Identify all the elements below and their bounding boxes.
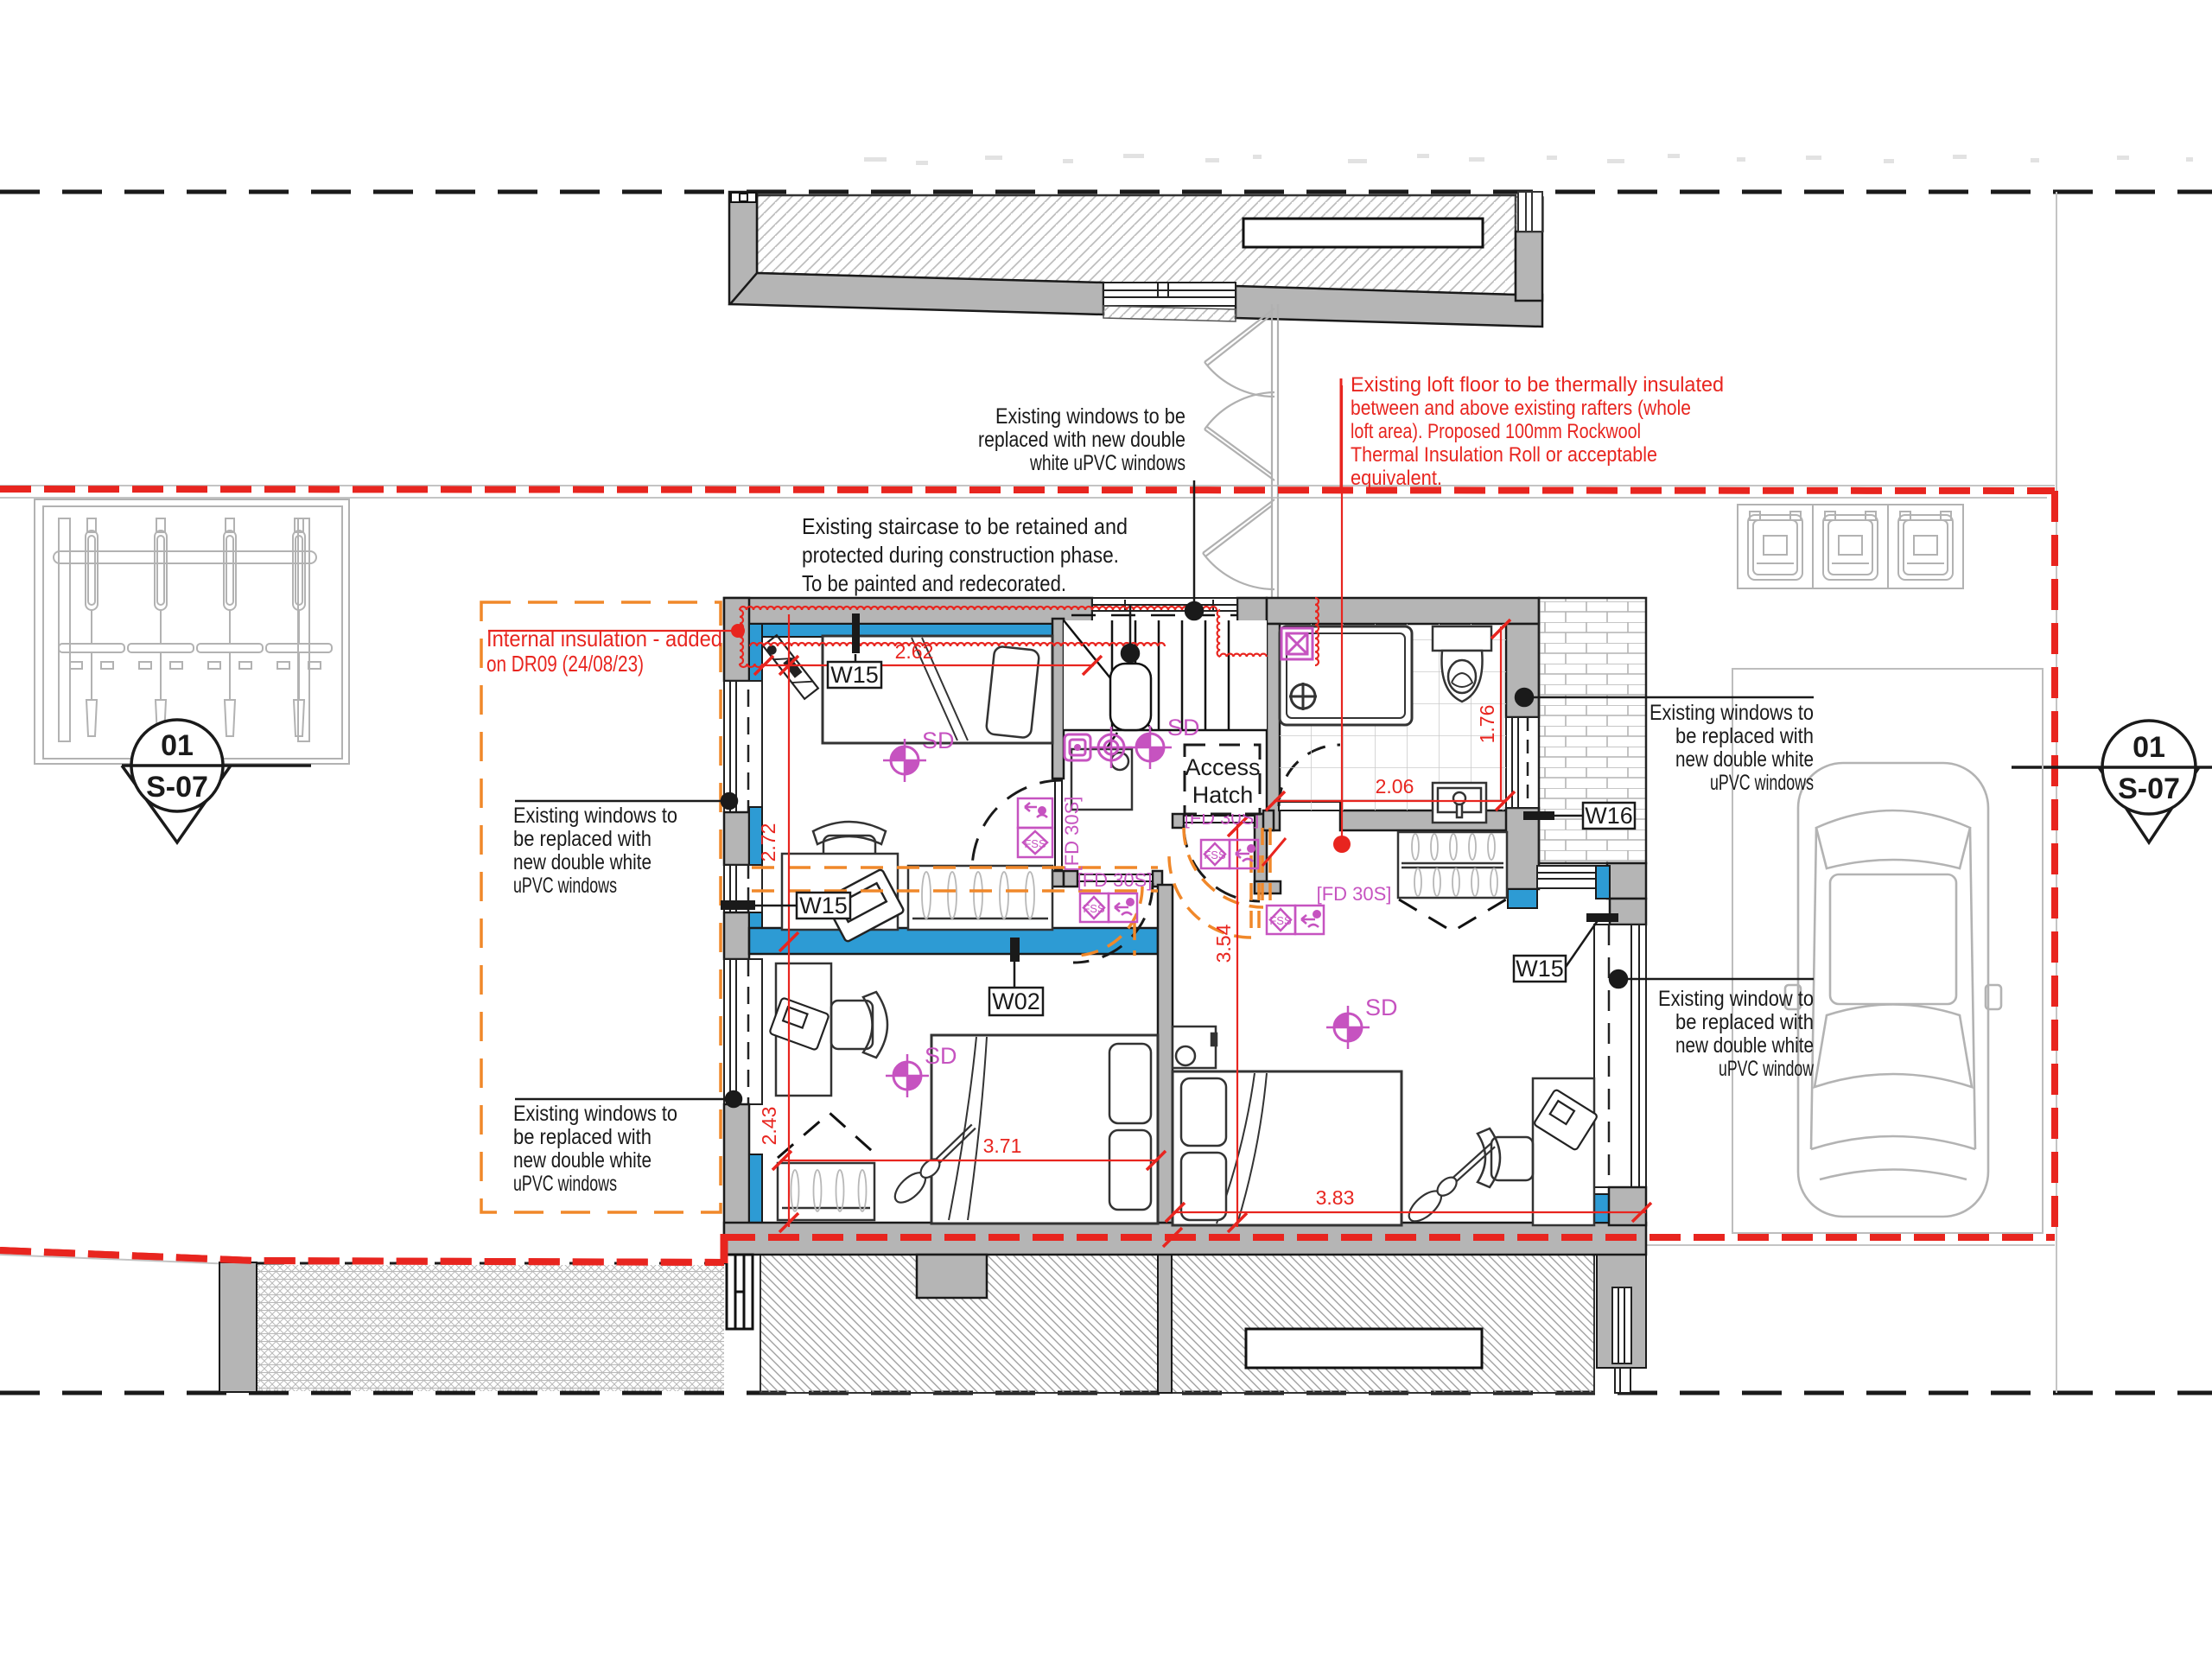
svg-text:Existing windows to: Existing windows to xyxy=(513,1102,677,1126)
svg-text:Access: Access xyxy=(1185,754,1260,780)
svg-text:S-07: S-07 xyxy=(2118,772,2180,805)
svg-text:be replaced with: be replaced with xyxy=(513,827,652,851)
svg-text:2.72: 2.72 xyxy=(757,823,779,862)
svg-text:3.83: 3.83 xyxy=(1316,1186,1355,1209)
svg-text:protected during construction: protected during construction phase. xyxy=(802,542,1119,568)
svg-text:[FD 30S]: [FD 30S] xyxy=(1061,797,1083,872)
svg-text:loft area). Proposed 100mm Roc: loft area). Proposed 100mm Rockwool xyxy=(1351,420,1641,443)
svg-text:Internal insulation - added: Internal insulation - added xyxy=(486,626,722,652)
svg-text:[FD 30S]: [FD 30S] xyxy=(1077,869,1153,891)
svg-text:white uPVC windows: white uPVC windows xyxy=(1029,451,1185,475)
svg-text:Existing window to: Existing window to xyxy=(1658,987,1814,1011)
svg-text:uPVC windows: uPVC windows xyxy=(513,874,617,898)
svg-text:SD: SD xyxy=(922,728,955,753)
svg-text:uPVC window: uPVC window xyxy=(1719,1057,1815,1081)
svg-text:Existing windows to: Existing windows to xyxy=(513,804,677,828)
svg-text:new double white: new double white xyxy=(1675,1033,1814,1058)
svg-text:uPVC windows: uPVC windows xyxy=(513,1172,617,1196)
svg-text:W15: W15 xyxy=(799,893,848,918)
svg-text:uPVC windows: uPVC windows xyxy=(1710,771,1814,795)
svg-text:2.06: 2.06 xyxy=(1376,775,1414,798)
svg-text:01: 01 xyxy=(161,729,194,762)
svg-text:3.54: 3.54 xyxy=(1212,924,1235,963)
svg-text:Existing loft floor to be ther: Existing loft floor to be thermally insu… xyxy=(1351,373,1724,397)
svg-text:FSS: FSS xyxy=(1269,914,1292,927)
svg-text:To be painted and redecorated.: To be painted and redecorated. xyxy=(802,570,1066,596)
svg-text:W02: W02 xyxy=(992,988,1040,1014)
svg-text:S-07: S-07 xyxy=(146,771,208,804)
svg-text:be replaced with: be replaced with xyxy=(1675,724,1814,748)
svg-text:SD: SD xyxy=(1167,715,1200,741)
svg-text:SD: SD xyxy=(1365,995,1398,1020)
svg-text:be replaced with: be replaced with xyxy=(1675,1010,1814,1034)
svg-text:Hatch: Hatch xyxy=(1192,782,1254,808)
svg-text:Existing windows to: Existing windows to xyxy=(1649,701,1814,725)
svg-text:Existing windows to be: Existing windows to be xyxy=(995,404,1185,429)
svg-text:new double white: new double white xyxy=(513,1148,652,1173)
svg-text:3.71: 3.71 xyxy=(983,1135,1022,1157)
svg-text:01: 01 xyxy=(2133,731,2165,764)
svg-text:FSS: FSS xyxy=(1083,902,1105,915)
svg-text:Existing staircase to be retai: Existing staircase to be retained and xyxy=(802,513,1128,539)
svg-text:1.76: 1.76 xyxy=(1476,705,1498,744)
svg-text:2.43: 2.43 xyxy=(758,1107,780,1146)
svg-text:Thermal Insulation Roll or acc: Thermal Insulation Roll or acceptable xyxy=(1351,443,1657,467)
svg-text:2.62: 2.62 xyxy=(895,640,934,663)
svg-text:new double white: new double white xyxy=(513,850,652,874)
svg-text:replaced with new double: replaced with new double xyxy=(978,428,1185,452)
svg-text:W15: W15 xyxy=(830,662,879,688)
svg-text:new double white: new double white xyxy=(1675,747,1814,772)
svg-text:be replaced with: be replaced with xyxy=(513,1125,652,1149)
svg-text:FSS: FSS xyxy=(1204,849,1226,861)
svg-text:equivalent.: equivalent. xyxy=(1351,467,1442,490)
svg-text:between and above existing raf: between and above existing rafters (whol… xyxy=(1351,397,1691,420)
svg-text:SD: SD xyxy=(925,1043,957,1069)
svg-text:[FD 30S]: [FD 30S] xyxy=(1317,883,1392,905)
svg-text:on DR09 (24/08/23): on DR09 (24/08/23) xyxy=(486,651,644,677)
svg-text:FSS: FSS xyxy=(1024,837,1046,850)
svg-text:W15: W15 xyxy=(1516,956,1564,982)
svg-text:W16: W16 xyxy=(1585,803,1633,829)
